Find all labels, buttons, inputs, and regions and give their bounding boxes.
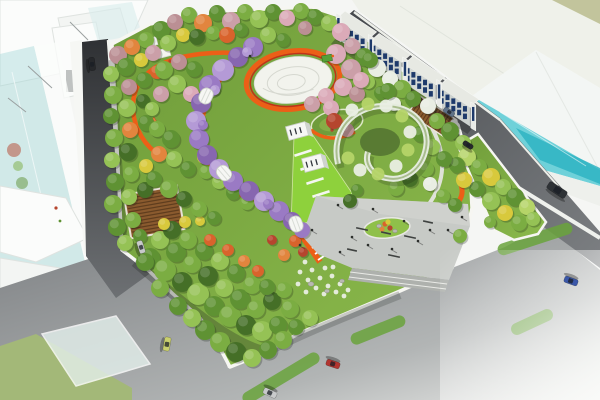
window (411, 72, 415, 78)
tree (201, 77, 212, 88)
tree (105, 109, 113, 117)
tree (261, 342, 270, 351)
tree (199, 147, 209, 157)
tree (253, 266, 259, 272)
tree (105, 67, 113, 75)
tree (121, 144, 130, 153)
vine-clump (342, 152, 355, 165)
tree (213, 253, 222, 262)
tree (168, 152, 176, 160)
tree (168, 244, 178, 254)
tree (249, 301, 258, 310)
white-shrub (298, 270, 303, 275)
white-shrub (314, 286, 319, 291)
window (389, 57, 393, 63)
tree (207, 27, 214, 34)
tree (264, 200, 269, 205)
tree (484, 193, 493, 202)
tree (299, 22, 306, 29)
white-shrub (304, 290, 309, 295)
tree (196, 15, 205, 24)
window (457, 110, 461, 116)
window (451, 98, 455, 104)
vine-clump (362, 98, 375, 111)
tree (352, 185, 358, 191)
tree (120, 100, 129, 109)
vine-clump (390, 160, 403, 173)
rock (393, 229, 397, 232)
tree (178, 192, 186, 200)
person (351, 236, 354, 239)
rendering-canvas (0, 0, 600, 400)
tree (346, 39, 354, 47)
person (461, 216, 464, 219)
tree (153, 232, 162, 241)
window (423, 80, 427, 86)
tree (151, 122, 159, 130)
vine-clump (404, 126, 417, 139)
tree (438, 152, 446, 160)
tree (239, 256, 245, 262)
tree (217, 280, 226, 289)
tree (140, 160, 147, 167)
tree (235, 24, 242, 31)
tree (185, 87, 193, 95)
rock (308, 282, 314, 287)
tree (241, 183, 251, 193)
tree (309, 10, 317, 18)
person (299, 244, 302, 247)
tower-window (472, 107, 474, 121)
tree (106, 153, 114, 161)
tree (154, 22, 163, 31)
white-shrub (318, 276, 323, 281)
tree (180, 217, 186, 223)
tree (200, 166, 207, 173)
vine-clump (354, 164, 367, 177)
tree (513, 216, 521, 224)
tree (323, 16, 331, 24)
tree (200, 268, 210, 278)
tree (320, 89, 328, 97)
reflection-speck (16, 177, 28, 189)
tree (134, 230, 141, 237)
white-shrub (303, 260, 308, 265)
tree (191, 131, 201, 141)
tree (224, 13, 233, 22)
white-shrub (296, 282, 301, 287)
white-shrub (331, 265, 336, 270)
tree (254, 323, 264, 333)
tree (290, 320, 298, 328)
tree (135, 54, 142, 61)
tree (146, 103, 153, 110)
window (463, 114, 467, 120)
tree (123, 190, 131, 198)
tree (328, 46, 338, 56)
tree (261, 280, 269, 288)
person (391, 248, 394, 251)
tree (295, 4, 303, 12)
white-shrub (310, 268, 315, 273)
tree (162, 36, 170, 44)
tree (238, 317, 248, 327)
tree (221, 28, 229, 36)
white-shrub (326, 284, 331, 289)
person (403, 220, 406, 223)
tree (243, 48, 248, 53)
tree (153, 280, 162, 289)
tree (364, 53, 372, 61)
tree (155, 87, 163, 95)
tree (119, 59, 128, 68)
tree (199, 121, 204, 126)
tree (473, 160, 481, 168)
tree (277, 34, 284, 41)
window (389, 65, 393, 71)
tree (306, 97, 314, 105)
tree (212, 334, 222, 344)
tree (449, 199, 456, 206)
tree (108, 174, 117, 183)
person (447, 229, 450, 232)
person (417, 240, 420, 243)
tree (484, 169, 493, 178)
tree (278, 283, 286, 291)
tree (156, 261, 167, 272)
window (361, 39, 365, 45)
window (463, 106, 467, 112)
tree (382, 84, 390, 92)
tree (183, 8, 191, 16)
tree (229, 265, 238, 274)
tree (443, 123, 452, 132)
tree (181, 232, 190, 241)
tree (137, 95, 144, 102)
tree (208, 212, 215, 219)
tree (232, 291, 242, 301)
rock (340, 279, 345, 283)
tree (343, 61, 353, 71)
window (377, 50, 381, 56)
tree (223, 245, 229, 251)
window (429, 91, 433, 97)
tree (140, 33, 148, 41)
tree (170, 76, 179, 85)
tree (499, 206, 507, 214)
person (249, 55, 252, 58)
tree (140, 116, 148, 124)
tree (221, 307, 232, 318)
tree (279, 250, 285, 256)
tree (271, 317, 280, 326)
tree (325, 101, 333, 109)
tree (351, 87, 359, 95)
window (423, 87, 427, 93)
vine-clump (372, 168, 385, 181)
tree (281, 11, 289, 19)
tree (193, 202, 201, 210)
tree (159, 219, 165, 225)
vine-clump (380, 100, 393, 113)
tree (245, 39, 255, 49)
tree (111, 47, 120, 56)
person (339, 251, 342, 254)
person (311, 229, 314, 232)
tree (185, 310, 194, 319)
tree (110, 219, 119, 228)
tree (106, 87, 115, 96)
window (417, 83, 421, 89)
tree (139, 183, 147, 191)
tree (214, 61, 225, 72)
island-plant (387, 225, 392, 230)
tree (228, 344, 238, 354)
tower-window (438, 84, 440, 98)
tower-window (404, 62, 406, 76)
window (395, 61, 399, 66)
tree (508, 189, 517, 198)
tree (124, 123, 132, 131)
window (445, 102, 449, 108)
window (383, 53, 387, 59)
tree (164, 131, 173, 140)
tree (384, 72, 392, 80)
tree (485, 217, 491, 223)
tree (153, 147, 161, 155)
window (411, 80, 415, 86)
tree (197, 243, 206, 252)
rock (377, 224, 382, 228)
tree (173, 55, 181, 63)
white-shrub (342, 294, 347, 299)
vine-clump (402, 144, 415, 157)
render-fade (440, 250, 600, 400)
tree (171, 298, 180, 307)
tree (245, 350, 254, 359)
window (457, 102, 461, 108)
tree (454, 230, 461, 237)
tree (424, 178, 431, 185)
tree (276, 332, 285, 341)
tree (162, 181, 171, 190)
tree (188, 62, 196, 70)
person (367, 244, 370, 247)
tree (344, 195, 351, 202)
tree (431, 114, 439, 122)
tree (497, 180, 505, 188)
tree (422, 99, 430, 107)
tree (107, 130, 116, 139)
speck (54, 206, 57, 209)
vine-clump (396, 110, 409, 123)
tree (336, 79, 345, 88)
tree (304, 311, 312, 319)
tree (239, 5, 247, 13)
vine-clump (346, 104, 359, 117)
tree (106, 196, 115, 205)
tree (252, 11, 261, 20)
tree (138, 73, 146, 81)
tree (521, 200, 529, 208)
tree (283, 301, 292, 310)
tree (206, 298, 216, 308)
white-shrub (330, 274, 335, 279)
reflection-speck (13, 161, 23, 171)
white-shrub (323, 266, 328, 271)
tree (355, 73, 363, 81)
person (337, 204, 340, 207)
tree (211, 6, 219, 14)
tree (169, 15, 177, 23)
tree (123, 80, 131, 88)
window (445, 95, 449, 101)
person (372, 208, 375, 211)
tree (268, 236, 273, 241)
white-shrub (346, 288, 351, 293)
window (417, 76, 421, 82)
tree (185, 256, 194, 265)
tree (182, 162, 190, 170)
tree (125, 167, 133, 175)
tree (334, 24, 343, 33)
window (429, 84, 433, 90)
tree (407, 92, 415, 100)
tree (188, 113, 198, 123)
rock (325, 289, 330, 293)
tree (328, 114, 336, 122)
tree (147, 46, 155, 54)
aerial-park-rendering (0, 0, 600, 400)
tree (262, 28, 270, 36)
tree (177, 29, 184, 36)
tree (245, 277, 254, 286)
tree (191, 30, 199, 38)
reflection-speck (7, 143, 21, 157)
tree (127, 213, 135, 221)
tree (230, 49, 240, 59)
tree (527, 213, 534, 220)
tree (119, 236, 127, 244)
tree (267, 5, 275, 13)
speck (59, 220, 62, 223)
tree (126, 40, 134, 48)
white-shrub (334, 290, 339, 295)
tree (205, 235, 211, 241)
tree (157, 62, 166, 71)
tree (437, 190, 444, 197)
tree (174, 274, 184, 284)
tree (189, 285, 200, 296)
tree (290, 236, 296, 242)
tree (148, 172, 156, 180)
island-plant (385, 219, 390, 224)
person (429, 229, 432, 232)
